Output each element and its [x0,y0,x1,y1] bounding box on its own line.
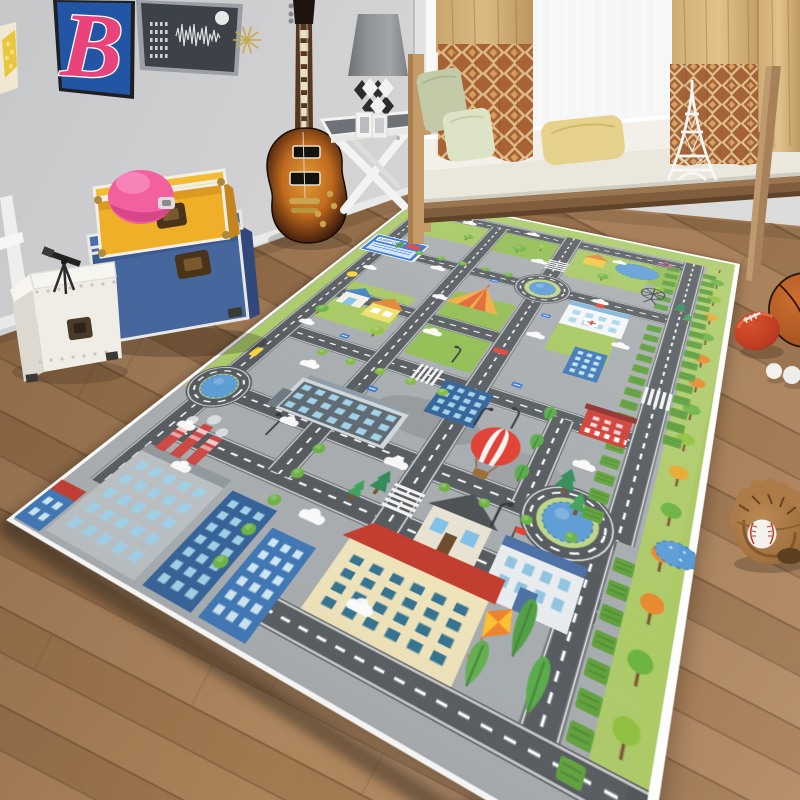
svg-text:B: B [58,0,126,98]
